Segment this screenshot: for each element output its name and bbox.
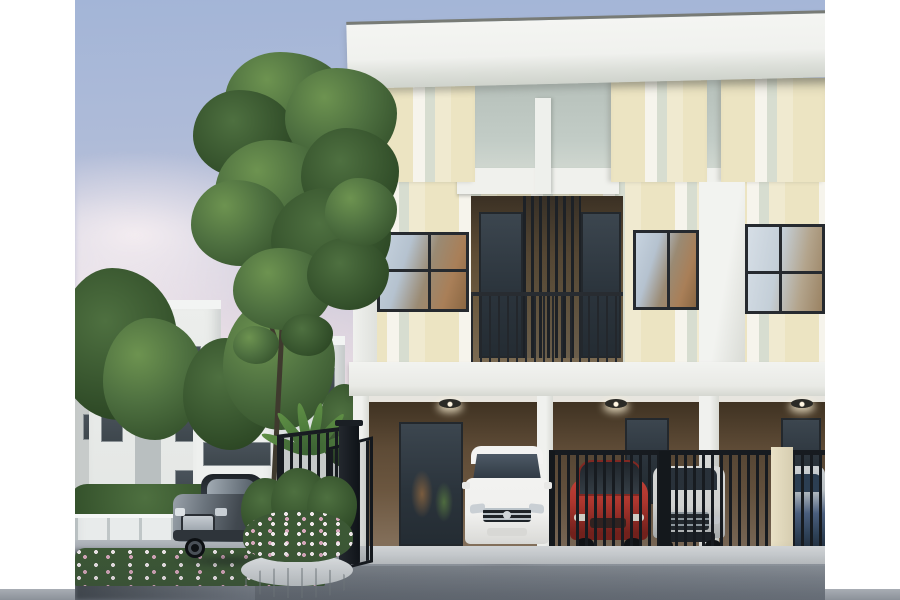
window-mullion: [667, 233, 670, 307]
carport-glass-door: [399, 422, 463, 546]
gate-post-cream: [771, 447, 793, 551]
security-gate-fence: [549, 450, 825, 561]
tree-foliage: [281, 314, 333, 356]
townhouse-building: [353, 0, 825, 564]
tree-foliage: [325, 178, 397, 246]
carport-ceiling-light: [605, 399, 627, 408]
window-mullion: [380, 269, 466, 272]
side-mirror: [544, 482, 552, 489]
interior-plant: [435, 482, 453, 522]
attic-pillar: [535, 98, 551, 194]
headlight: [215, 508, 227, 516]
upstairs-window: [377, 232, 469, 312]
planter-stone-base: [245, 568, 349, 598]
balcony-railing: [471, 292, 623, 362]
corner-window: [745, 224, 825, 314]
facade-pier: [721, 78, 825, 182]
unit-divider-pier: [699, 182, 745, 366]
van-emblem: [503, 511, 511, 519]
carport-ceiling-light: [791, 399, 813, 408]
carport-curb: [341, 546, 825, 564]
tree-foliage: [307, 238, 389, 310]
van-windshield: [473, 454, 541, 480]
gate-column-cap: [335, 420, 363, 426]
round-planter: [241, 468, 357, 600]
van-lower-intake: [487, 528, 527, 536]
tree-foliage: [233, 326, 279, 364]
gate-post: [659, 451, 671, 551]
balcony-recess: [471, 196, 623, 362]
window-mullion: [748, 271, 822, 274]
planter-flowers: [243, 510, 353, 562]
townhouse-render-photo: [75, 0, 825, 600]
upstairs-window: [633, 230, 699, 310]
car-wheel: [185, 538, 205, 558]
headlight: [529, 503, 544, 514]
interior-warm-light: [411, 470, 433, 518]
window-mullion: [779, 227, 782, 311]
carport-ceiling-light: [439, 399, 461, 408]
floor-slab: [349, 362, 825, 396]
gate-post: [549, 451, 555, 551]
headlight: [175, 508, 185, 516]
roof-slab: [346, 10, 825, 89]
side-mirror: [462, 482, 470, 489]
facade-pier: [611, 78, 707, 182]
